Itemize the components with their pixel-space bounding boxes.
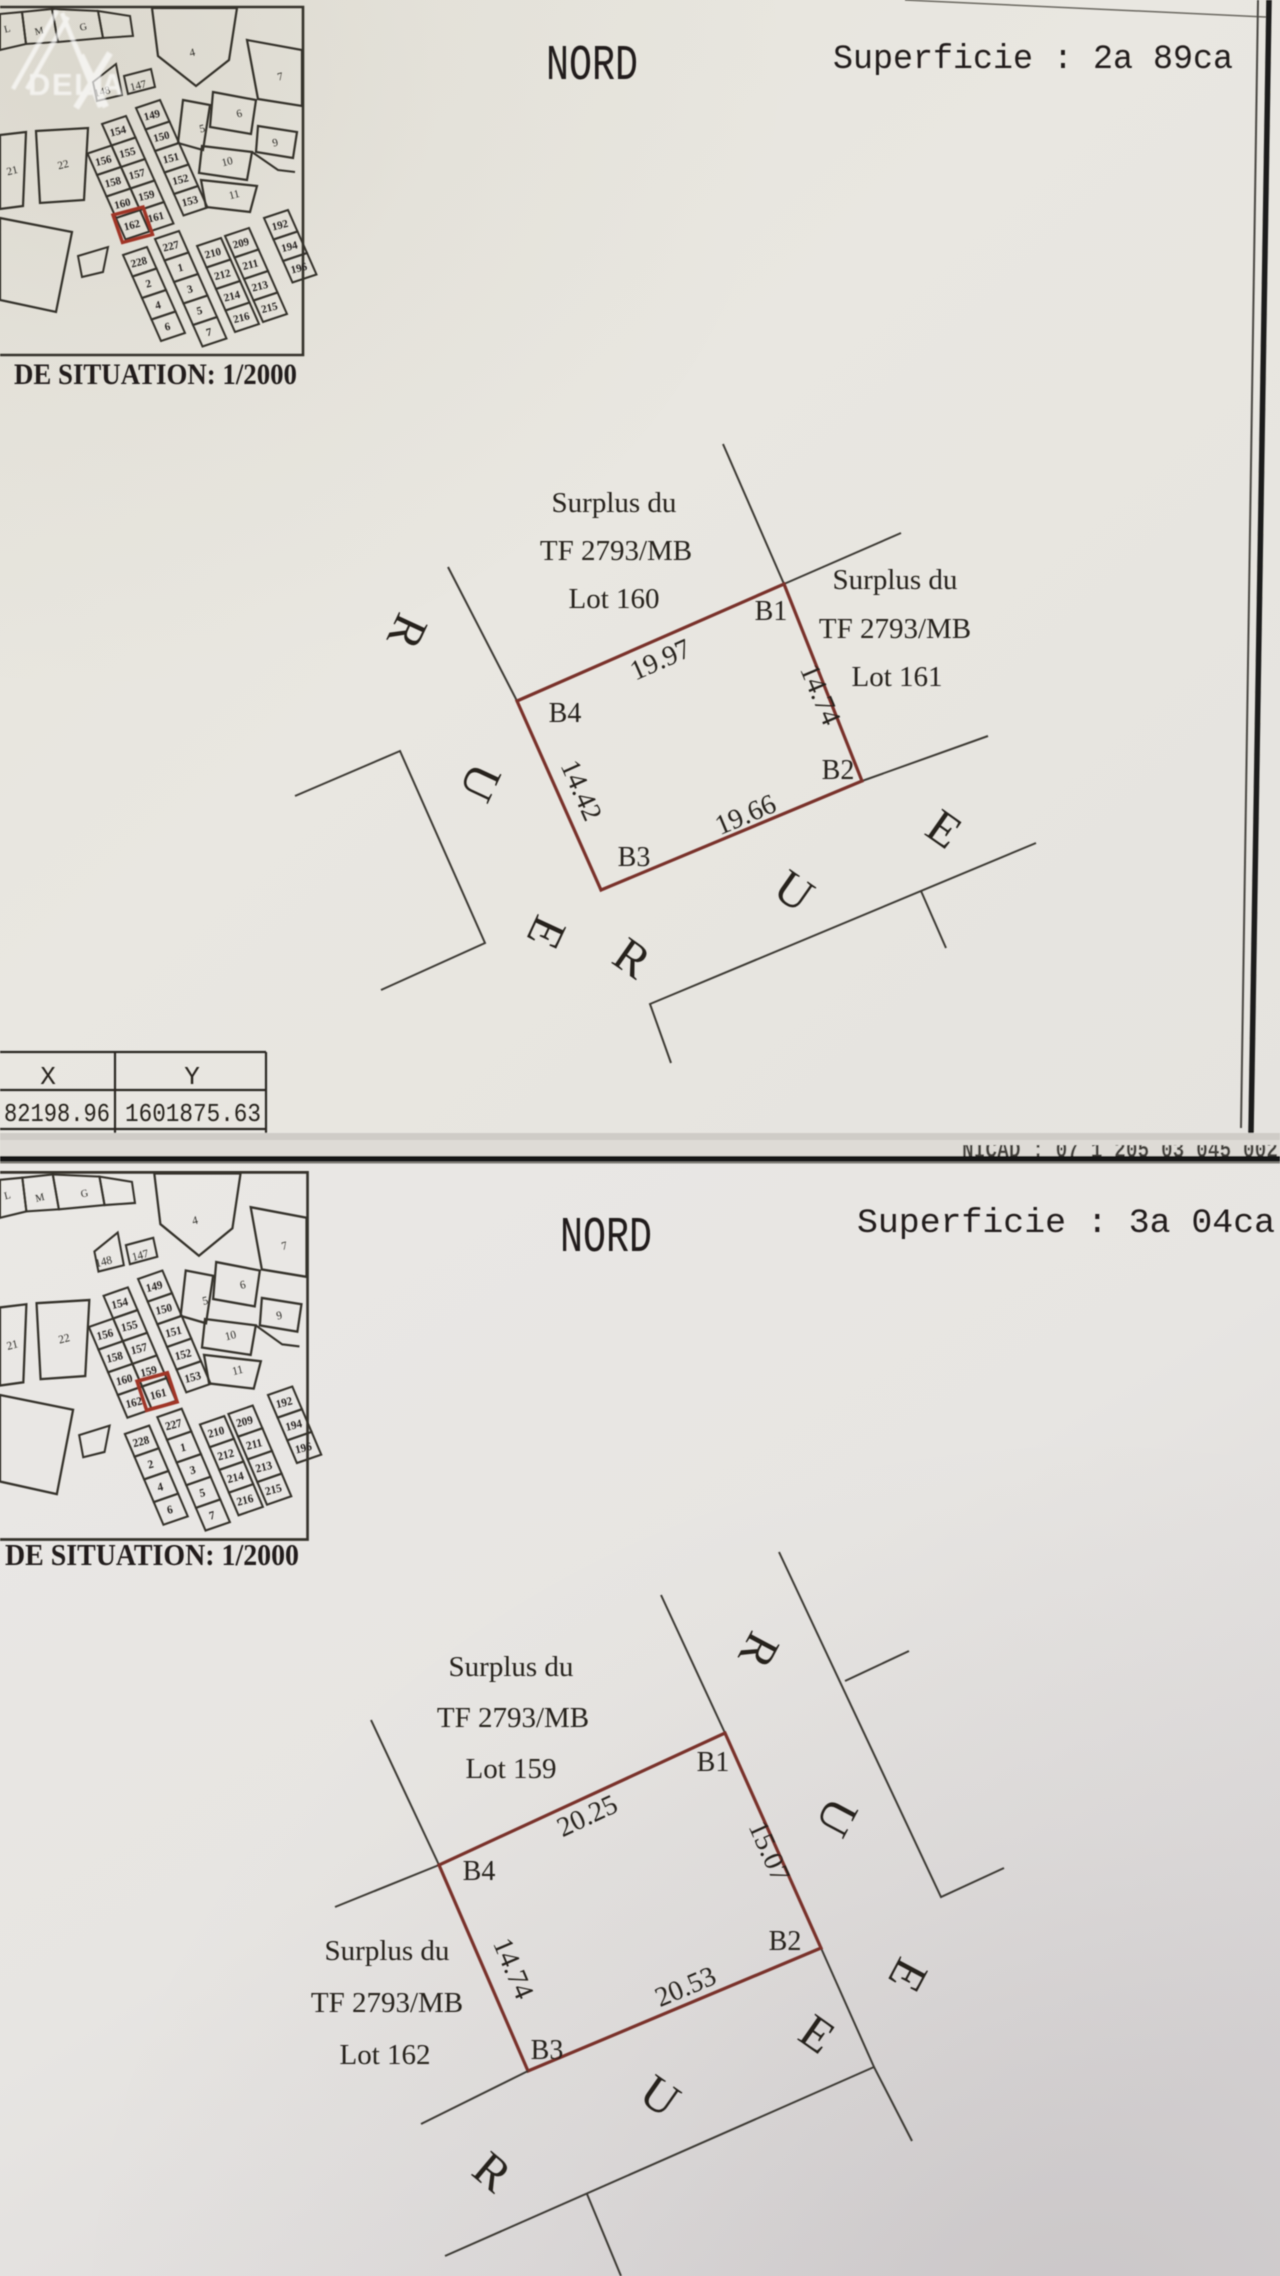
svg-text:TF 2793/MB: TF 2793/MB [311,1987,463,2019]
svg-text:Lot 162: Lot 162 [339,2039,430,2071]
svg-text:Surplus du: Surplus du [325,1935,450,1967]
svg-text:DELI: DELI [28,67,105,102]
svg-text:B2: B2 [822,755,855,786]
svg-text:DE SITUATION: 1/2000: DE SITUATION: 1/2000 [14,358,297,391]
svg-text:X: X [40,1062,56,1092]
svg-text:B3: B3 [618,842,651,873]
svg-text:Lot 159: Lot 159 [465,1753,556,1785]
svg-text:TF 2793/MB: TF 2793/MB [819,613,971,645]
svg-text:B1: B1 [697,1747,730,1778]
svg-text:B4: B4 [549,698,582,729]
svg-text:Superficie : 2a 89ca: Superficie : 2a 89ca [833,41,1233,79]
svg-text:Surplus du: Surplus du [833,564,958,596]
svg-text:Lot 161: Lot 161 [851,661,942,693]
svg-text:DE SITUATION: 1/2000: DE SITUATION: 1/2000 [5,1537,299,1572]
svg-text:1601875.63: 1601875.63 [125,1099,261,1129]
svg-text:NORD: NORD [560,1210,652,1267]
svg-text:B4: B4 [463,1856,496,1887]
svg-text:Superficie : 3a 04ca: Superficie : 3a 04ca [857,1205,1275,1243]
svg-text:Surplus du: Surplus du [449,1651,574,1683]
svg-text:Lot 160: Lot 160 [568,583,659,615]
svg-text:NORD: NORD [546,38,638,95]
svg-text:A: A [101,67,123,102]
svg-text:B1: B1 [755,596,788,627]
svg-text:B2: B2 [769,1926,802,1957]
svg-text:82198.96: 82198.96 [4,1099,110,1129]
svg-text:Y: Y [184,1062,200,1092]
svg-text:B3: B3 [531,2035,564,2066]
svg-text:TF 2793/MB: TF 2793/MB [540,535,692,567]
svg-text:TF 2793/MB: TF 2793/MB [437,1702,589,1734]
svg-text:Surplus du: Surplus du [552,487,677,519]
